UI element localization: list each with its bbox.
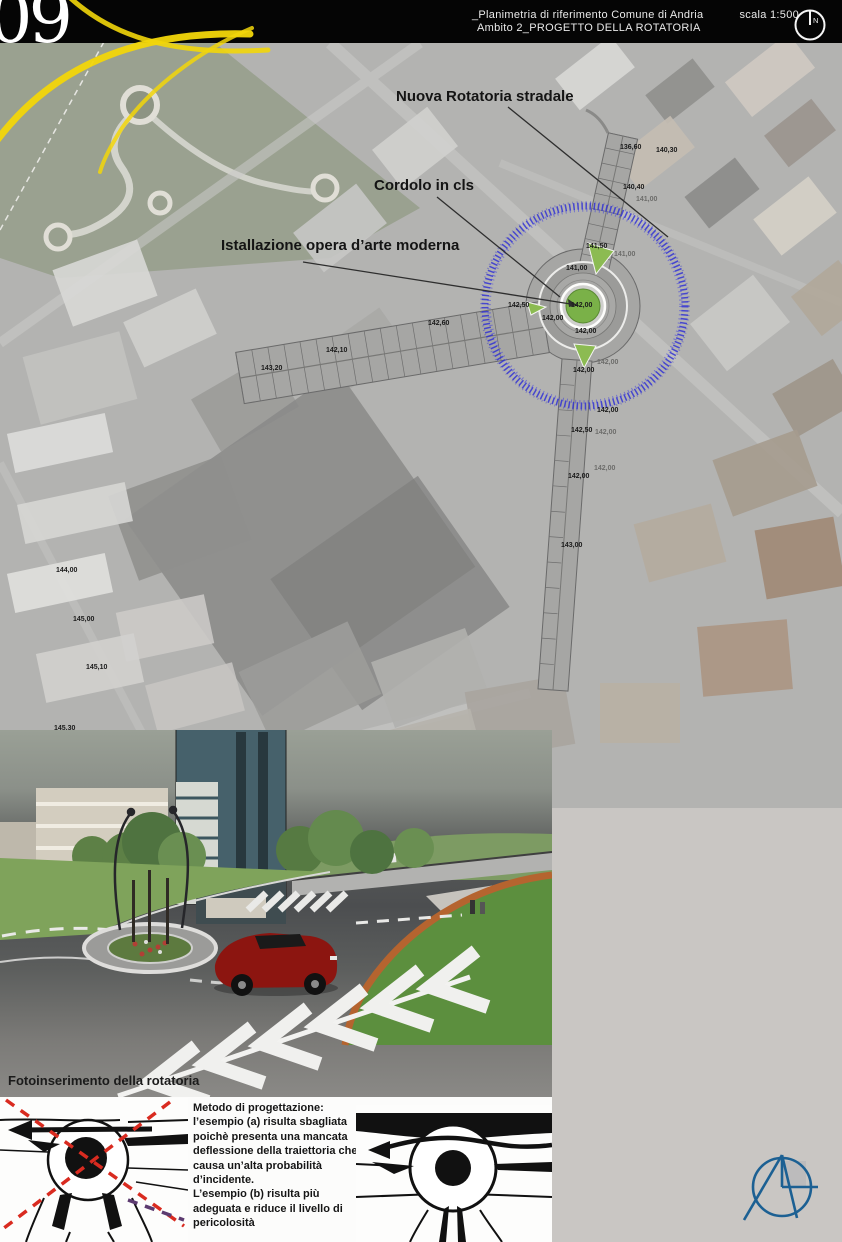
elevation-label: 140,30	[656, 147, 677, 154]
diagram-a-wrong-design	[0, 1098, 188, 1242]
elevation-label: 141,00	[636, 196, 657, 203]
elevation-label: 142,00	[571, 302, 592, 309]
elevation-label: 141,50	[586, 243, 607, 250]
sheet-number: 09	[0, 0, 69, 53]
render-caption: Fotoinserimento della rotatoria	[8, 1073, 199, 1088]
red-car	[214, 933, 338, 996]
plan-title: _Planimetria di riferimento Comune di An…	[472, 9, 703, 21]
elevation-label: 142,00	[568, 473, 589, 480]
elevation-label: 145,10	[86, 664, 107, 671]
photo-render	[0, 730, 552, 1097]
elevation-label: 142,50	[571, 427, 592, 434]
elevation-label: 142,00	[573, 367, 594, 374]
elevation-label: 141,00	[566, 265, 587, 272]
aerial-photo	[0, 43, 842, 808]
elevation-label: 142,00	[575, 328, 596, 335]
method-body: l’esempio (a) risulta sbagliata poichè p…	[193, 1115, 364, 1230]
elevation-label: 140,40	[623, 184, 644, 191]
elevation-label: 136,60	[620, 144, 641, 151]
elevation-label: 143,00	[561, 542, 582, 549]
plan-annotation: Istallazione opera d’arte moderna	[221, 237, 459, 254]
elevation-label: 144,00	[56, 567, 77, 574]
north-letter: N	[813, 16, 818, 25]
elevation-label: 142,10	[326, 347, 347, 354]
aerial-texture	[0, 43, 842, 808]
elevation-label: 142,00	[542, 315, 563, 322]
elevation-label: 142,00	[597, 359, 618, 366]
render-scene	[0, 730, 552, 1097]
elevation-label: 142,00	[594, 465, 615, 472]
method-heading: Metodo di progettazione:	[193, 1101, 364, 1115]
elevation-label: 141,00	[614, 251, 635, 258]
elevation-label: 145,00	[73, 616, 94, 623]
elevation-label: 142,60	[428, 320, 449, 327]
diagram-b-correct-design	[356, 1105, 552, 1242]
north-arrow-icon: N	[790, 3, 830, 43]
plan-annotation: Nuova Rotatoria stradale	[396, 88, 574, 105]
title-block: _Planimetria di riferimento Comune di An…	[472, 9, 799, 34]
studio-logo	[736, 1146, 832, 1238]
elevation-label: 143,20	[261, 365, 282, 372]
elevation-label: 142,00	[597, 407, 618, 414]
plan-subtitle: Ambito 2_PROGETTO DELLA ROTATORIA	[472, 22, 799, 34]
plan-annotation: Cordolo in cls	[374, 177, 474, 194]
presentation-board: 136,60140,30140,40141,00141,50141,00141,…	[0, 0, 842, 1242]
plan-title-line: _Planimetria di riferimento Comune di An…	[472, 9, 799, 21]
elevation-label: 142,50	[508, 302, 529, 309]
method-note: Metodo di progettazione: l’esempio (a) r…	[193, 1101, 364, 1231]
elevation-label: 142,00	[595, 429, 616, 436]
